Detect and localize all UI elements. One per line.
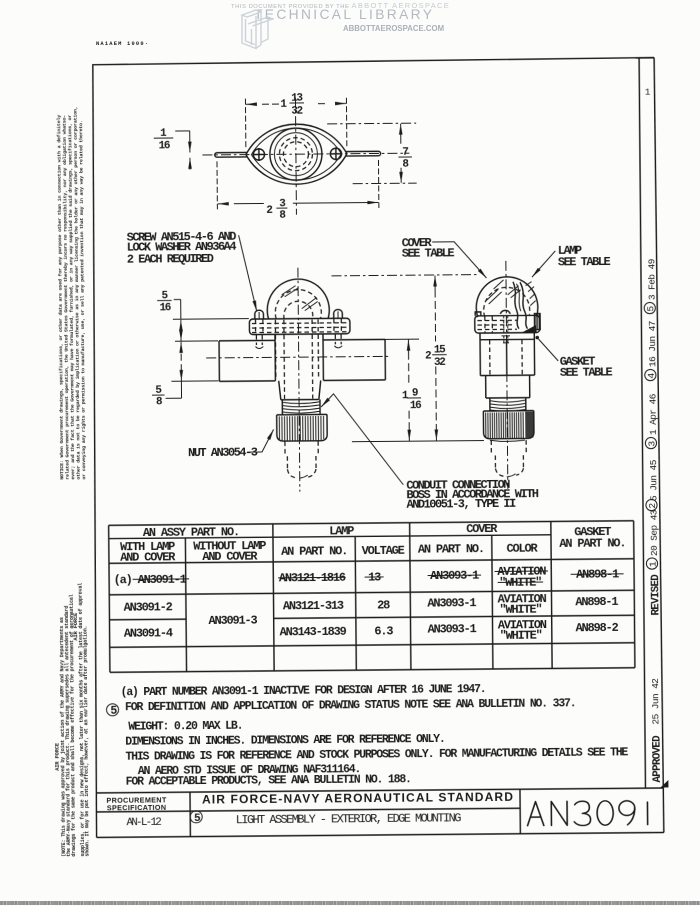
svg-text:COVER: COVER <box>466 522 498 536</box>
svg-text:NA1AEM 1000·: NA1AEM 1000· <box>96 41 149 47</box>
svg-text:"WHITE": "WHITE" <box>499 603 541 617</box>
svg-text:AN3091-3: AN3091-3 <box>208 614 257 628</box>
svg-text:WEIGHT: 0.20 MAX LB.: WEIGHT: 0.20 MAX LB. <box>128 720 242 734</box>
svg-text:AN3121-313: AN3121-313 <box>283 599 344 614</box>
svg-text:LIGHT ASSEMBLY - EXTERIOR, EDG: LIGHT ASSEMBLY - EXTERIOR, EDGE MOUNTING <box>236 811 462 827</box>
svg-text:(a) PART NUMBER AN3091-1 INAC: (a) PART NUMBER AN3091-1 INACTIVE FOR DE… <box>121 683 486 699</box>
svg-text:VOLTAGE: VOLTAGE <box>362 544 405 558</box>
svg-text:3 Feb 49: 3 Feb 49 <box>646 258 657 300</box>
svg-text:AIR FORCE-NAVY AERONAUTICAL ST: AIR FORCE-NAVY AERONAUTICAL STANDARD <box>202 790 514 807</box>
svg-text:8: 8 <box>279 210 286 222</box>
svg-text:THIS DRAWING IS FOR REFERENCE: THIS DRAWING IS FOR REFERENCE AND STOCK … <box>125 746 628 763</box>
svg-text:4: 4 <box>646 373 657 379</box>
svg-text:32: 32 <box>434 357 445 369</box>
svg-text:AND10051-3, TYPE II: AND10051-3, TYPE II <box>406 497 516 512</box>
svg-text:16: 16 <box>159 302 170 314</box>
svg-text:AN898-2: AN898-2 <box>575 621 618 635</box>
svg-text:32: 32 <box>291 106 302 118</box>
svg-text:AN ASSY PART NO.: AN ASSY PART NO. <box>143 525 239 540</box>
svg-text:5: 5 <box>194 813 201 825</box>
svg-text:AND COVER: AND COVER <box>120 550 176 564</box>
svg-text:2: 2 <box>647 503 658 509</box>
svg-text:5: 5 <box>110 705 117 718</box>
svg-text:COLOR: COLOR <box>506 542 538 556</box>
svg-text:1: 1 <box>280 99 287 111</box>
svg-text:AN3093-1: AN3093-1 <box>427 596 476 610</box>
svg-text:NUT AN3054-3: NUT AN3054-3 <box>188 445 258 460</box>
svg-text:28: 28 <box>377 598 390 612</box>
svg-text:AND COVER: AND COVER <box>202 550 258 564</box>
svg-text:(a) AN3091-1: (a) AN3091-1 <box>114 573 187 588</box>
svg-text:shown. It may be put into eff: shown. It may be put into effect, howeve… <box>83 626 91 857</box>
svg-text:AN PART NO.: AN PART NO. <box>559 536 625 551</box>
svg-text:AN3143-1839: AN3143-1839 <box>280 625 347 640</box>
svg-text:AN3091-2: AN3091-2 <box>124 600 173 614</box>
svg-text:LAMP: LAMP <box>329 524 354 538</box>
svg-text:1: 1 <box>402 390 409 402</box>
svg-text:16: 16 <box>158 140 169 152</box>
svg-text:AN PART NO.: AN PART NO. <box>281 544 347 559</box>
svg-text:SEE TABLE: SEE TABLE <box>402 246 455 260</box>
svg-text:1: 1 <box>645 88 650 98</box>
svg-text:AN3091-4: AN3091-4 <box>124 626 173 640</box>
svg-text:AN PART NO.: AN PART NO. <box>418 542 484 557</box>
svg-text:DIMENSIONS IN INCHES. DIMENSI: DIMENSIONS IN INCHES. DIMENSIONS ARE FOR… <box>125 733 444 749</box>
svg-text:16: 16 <box>410 400 421 412</box>
svg-text:5 Jun 45: 5 Jun 45 <box>648 459 659 501</box>
svg-text:1 Apr 46: 1 Apr 46 <box>648 393 659 435</box>
svg-text:2: 2 <box>425 351 431 363</box>
svg-text:2 EACH REQUIRED: 2 EACH REQUIRED <box>127 252 214 267</box>
svg-text:SEE TABLE: SEE TABLE <box>558 255 611 269</box>
svg-text:AN898-1: AN898-1 <box>575 595 618 609</box>
svg-text:FOR ACCEPTABLE PRODUCTS, SEE A: FOR ACCEPTABLE PRODUCTS, SEE ANA BULLETI… <box>126 773 411 788</box>
svg-text:SEE TABLE: SEE TABLE <box>560 365 613 379</box>
svg-text:2: 2 <box>266 205 272 217</box>
svg-text:FOR DEFINITION AND APPLICATION: FOR DEFINITION AND APPLICATION OF DRAWIN… <box>125 697 575 714</box>
svg-text:1: 1 <box>647 561 658 567</box>
svg-text:APPROVED: APPROVED <box>651 735 663 783</box>
svg-text:3: 3 <box>646 441 657 447</box>
svg-text:6.3: 6.3 <box>374 624 393 638</box>
svg-text:25 Jun 42: 25 Jun 42 <box>650 678 661 725</box>
svg-text:AN-L-12: AN-L-12 <box>126 817 161 829</box>
svg-text:SPECIFICATION: SPECIFICATION <box>107 803 167 813</box>
svg-text:8: 8 <box>402 159 409 171</box>
svg-text:16 Jun 47: 16 Jun 47 <box>647 321 658 367</box>
svg-text:REVISED: REVISED <box>650 574 662 616</box>
svg-text:20 Sep 43: 20 Sep 43 <box>649 509 660 556</box>
svg-text:8: 8 <box>156 396 163 408</box>
svg-text:AN3093-1: AN3093-1 <box>427 622 476 636</box>
svg-text:"WHITE": "WHITE" <box>500 629 542 643</box>
svg-text:5: 5 <box>645 306 656 312</box>
